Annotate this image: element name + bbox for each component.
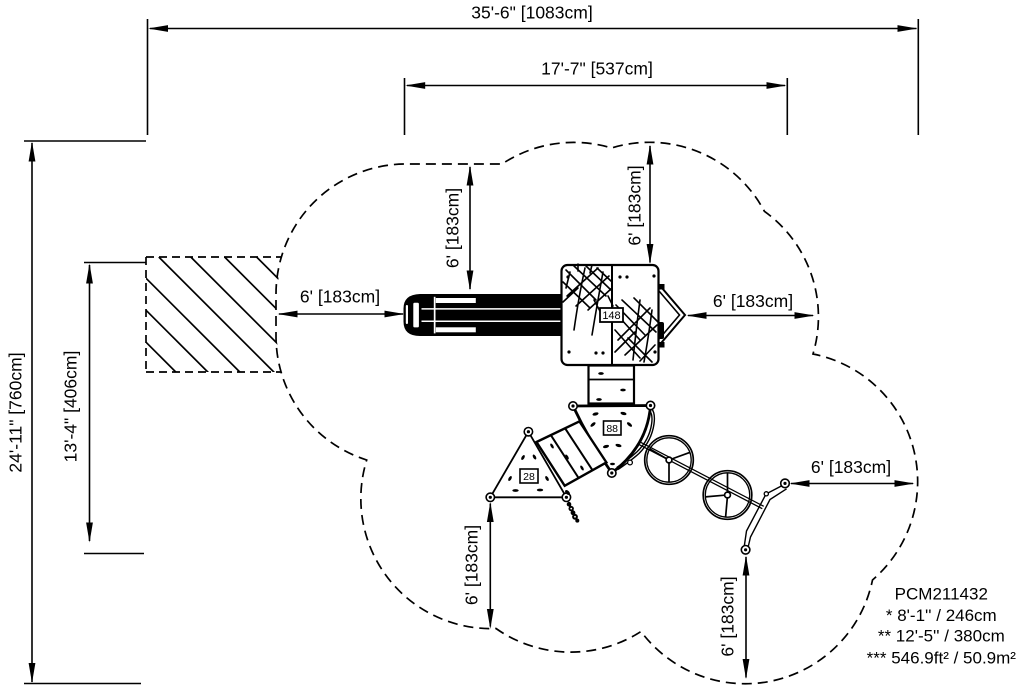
svg-text:17'-7" [537cm]: 17'-7" [537cm]: [541, 59, 653, 79]
svg-text:35'-6" [1083cm]: 35'-6" [1083cm]: [471, 3, 592, 23]
svg-text:13'-4" [406cm]: 13'-4" [406cm]: [61, 351, 81, 463]
svg-text:PCM211432: PCM211432: [895, 585, 988, 604]
svg-text:6' [183cm]: 6' [183cm]: [443, 188, 463, 268]
svg-text:88: 88: [606, 423, 618, 435]
svg-text:6' [183cm]: 6' [183cm]: [718, 576, 738, 656]
svg-text:28: 28: [523, 471, 535, 483]
svg-text:** 12'-5'' / 380cm: ** 12'-5'' / 380cm: [878, 627, 1005, 646]
svg-text:148: 148: [602, 310, 620, 322]
svg-text:6' [183cm]: 6' [183cm]: [713, 291, 793, 311]
svg-text:6' [183cm]: 6' [183cm]: [300, 287, 380, 307]
svg-text:6' [183cm]: 6' [183cm]: [811, 457, 891, 477]
svg-text:6' [183cm]: 6' [183cm]: [462, 525, 482, 605]
svg-text:* 8'-1'' / 246cm: * 8'-1'' / 246cm: [886, 606, 997, 625]
svg-text:6' [183cm]: 6' [183cm]: [625, 165, 645, 245]
svg-text:24'-11" [760cm]: 24'-11" [760cm]: [6, 352, 26, 472]
svg-text:*** 546.9ft² / 50.9m²: *** 546.9ft² / 50.9m²: [867, 649, 1017, 668]
